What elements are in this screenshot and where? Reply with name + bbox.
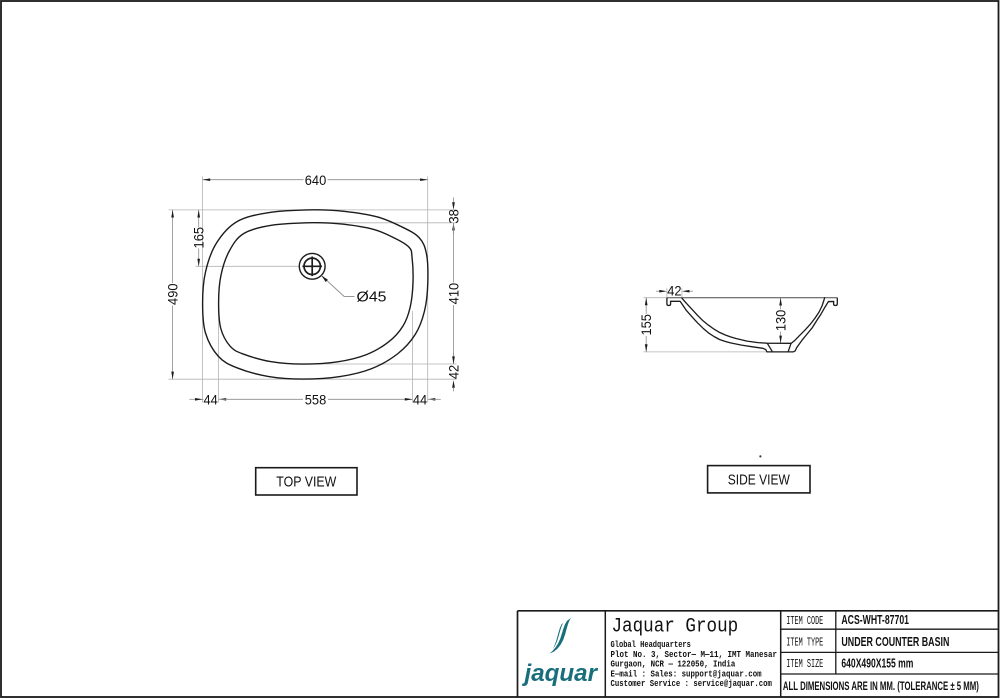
svg-text:38: 38	[446, 209, 461, 223]
svg-text:44: 44	[203, 392, 218, 407]
svg-text:jaquar: jaquar	[522, 660, 599, 687]
svg-text:ITEM SIZE: ITEM SIZE	[786, 658, 823, 671]
svg-text:ITEM TYPE: ITEM TYPE	[786, 637, 823, 650]
svg-text:410: 410	[446, 283, 461, 305]
svg-text:ITEM CODE: ITEM CODE	[786, 615, 823, 628]
svg-text:640X490X155 mm: 640X490X155 mm	[841, 657, 913, 671]
svg-text:SIDE VIEW: SIDE VIEW	[728, 473, 790, 489]
svg-text:ALL DIMENSIONS ARE IN MM. (TOL: ALL DIMENSIONS ARE IN MM. (TOLERANCE ± 5…	[783, 679, 979, 693]
svg-text:42: 42	[446, 365, 461, 379]
svg-text:165: 165	[192, 227, 207, 249]
svg-text:UNDER COUNTER BASIN: UNDER COUNTER BASIN	[841, 635, 949, 649]
svg-text:42: 42	[667, 284, 681, 299]
svg-text:Ø45: Ø45	[357, 290, 387, 306]
svg-text:Jaquar Group: Jaquar Group	[612, 615, 739, 638]
svg-text:490: 490	[165, 283, 180, 305]
svg-text:ACS-WHT-87701: ACS-WHT-87701	[841, 613, 909, 627]
svg-text:155: 155	[639, 314, 654, 336]
svg-text:558: 558	[305, 392, 327, 407]
svg-text:Customer Service : service@jaq: Customer Service : service@jaquar.com	[611, 678, 773, 689]
svg-text:44: 44	[413, 392, 428, 407]
svg-text:640: 640	[305, 173, 327, 188]
svg-text:130: 130	[773, 310, 788, 332]
svg-text:TOP VIEW: TOP VIEW	[276, 475, 336, 491]
